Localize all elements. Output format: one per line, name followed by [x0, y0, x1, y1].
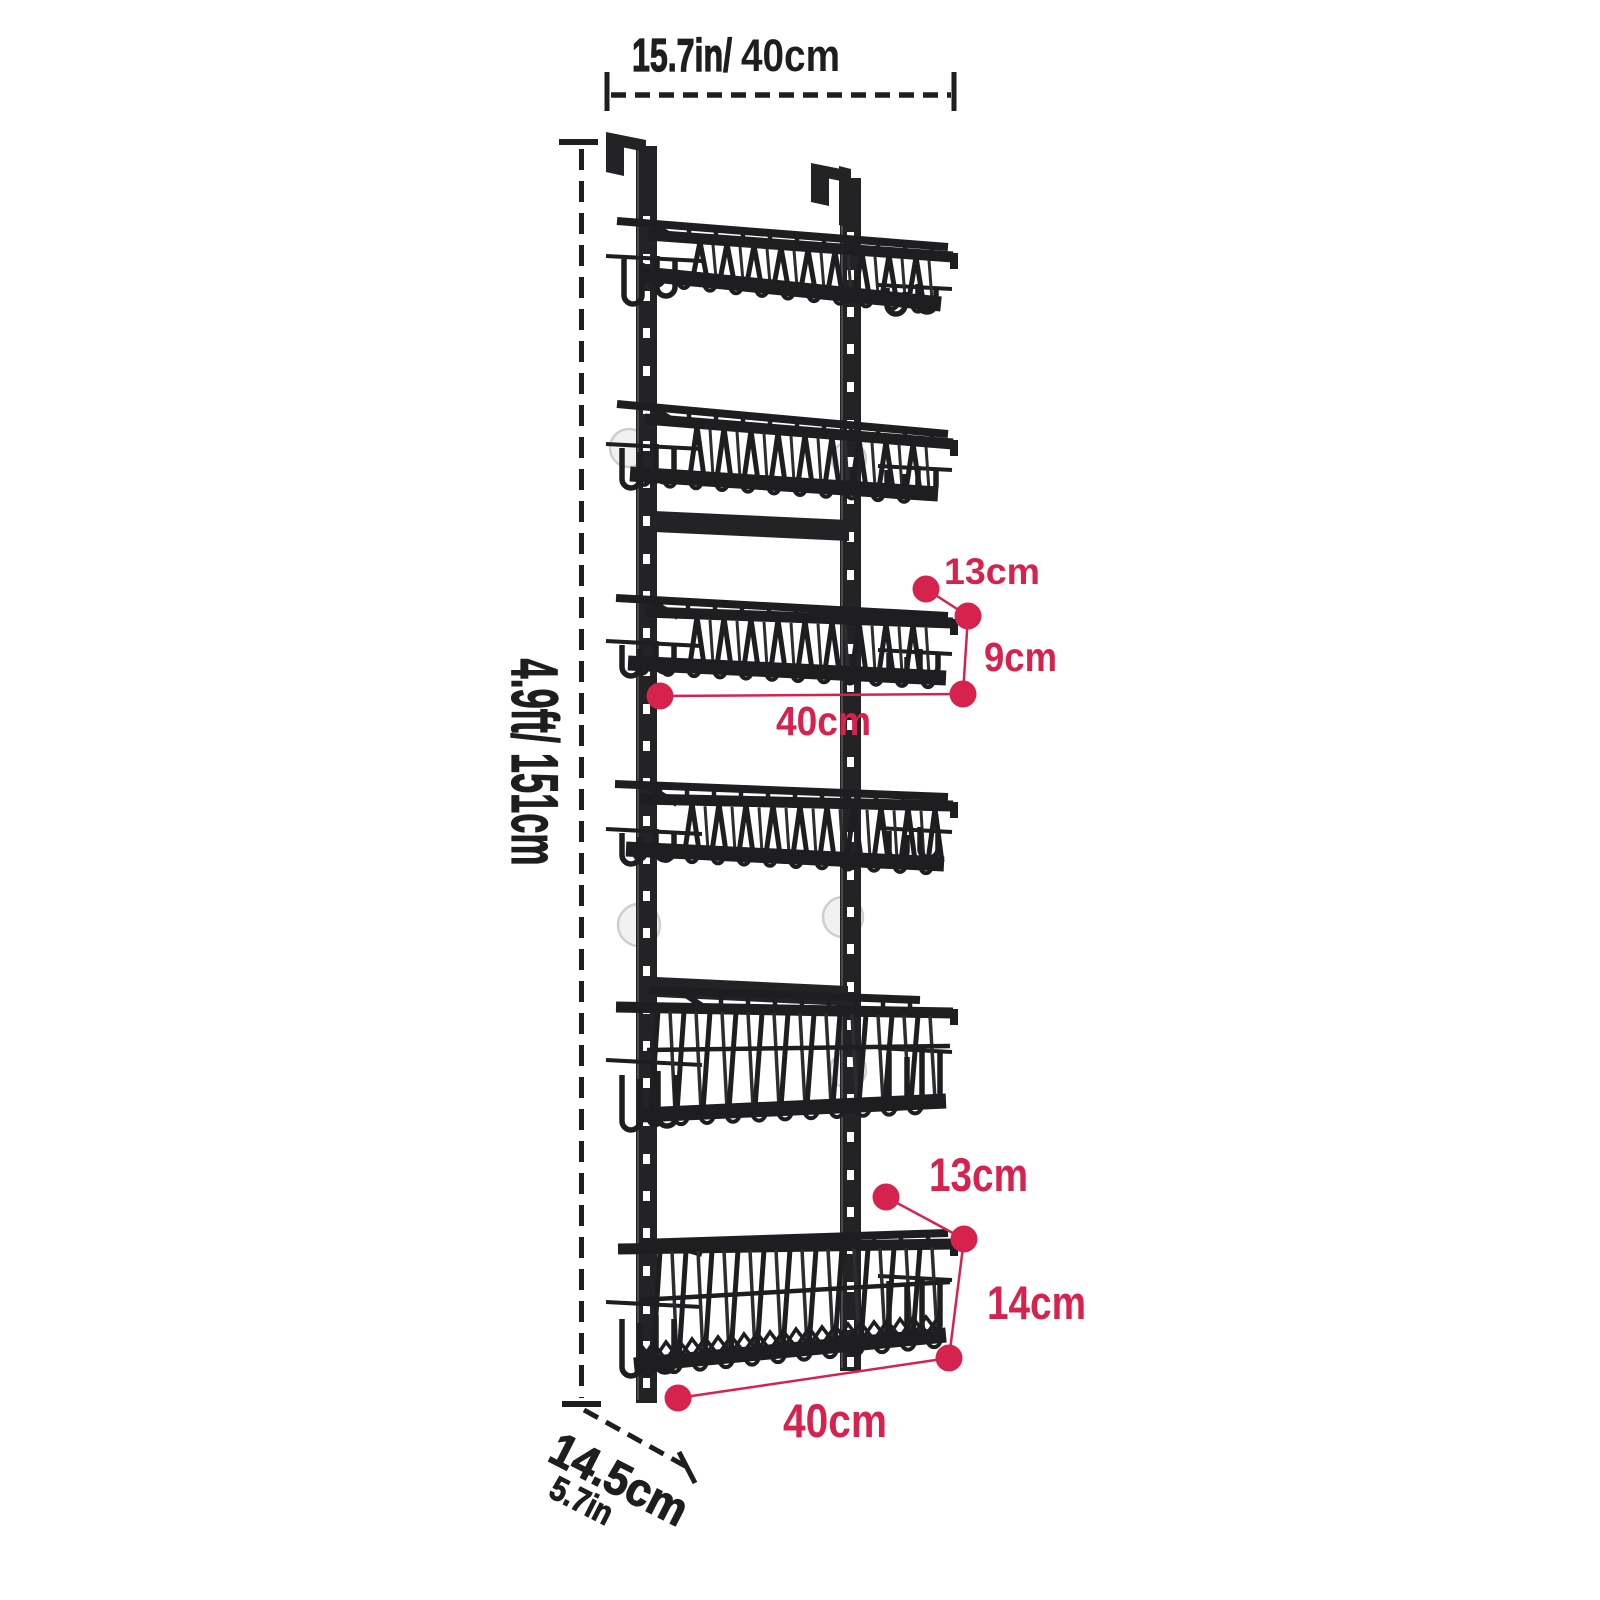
svg-text:9cm: 9cm — [984, 634, 1057, 680]
svg-text:40cm: 40cm — [783, 1394, 887, 1447]
svg-text:13cm: 13cm — [944, 551, 1040, 592]
svg-text:15.7in/: 15.7in/ — [632, 29, 732, 81]
svg-text:13cm: 13cm — [929, 1148, 1028, 1201]
svg-text:4.9ft/ 151cm: 4.9ft/ 151cm — [498, 659, 572, 866]
svg-text:40cm: 40cm — [776, 698, 871, 744]
svg-text:14cm: 14cm — [987, 1276, 1086, 1329]
svg-text:40cm: 40cm — [741, 30, 840, 81]
